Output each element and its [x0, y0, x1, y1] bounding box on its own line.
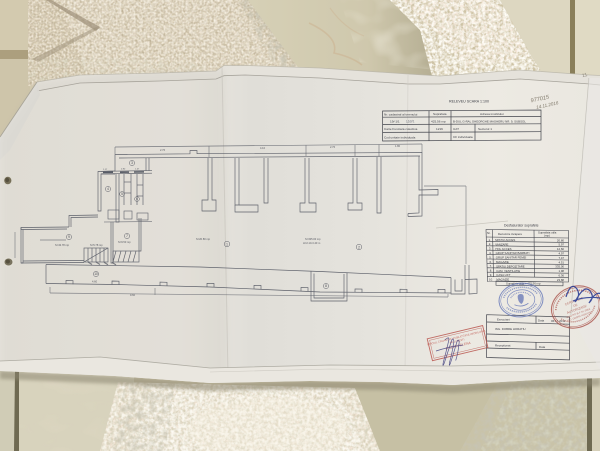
svg-text:Nr.: Nr.: [487, 231, 491, 235]
svg-text:Denumire incapere: Denumire incapere: [498, 232, 522, 236]
svg-text:2.76: 2.76: [160, 148, 166, 152]
svg-text:23,88: 23,88: [557, 278, 565, 282]
svg-text:1,98: 1,98: [558, 269, 564, 273]
svg-text:4: 4: [107, 187, 109, 191]
svg-text:1: 1: [226, 242, 228, 246]
svg-text:Receptionat: Receptionat: [495, 344, 511, 348]
svg-text:Data: Data: [538, 319, 544, 323]
svg-text:6: 6: [136, 197, 138, 201]
svg-text:4,97: 4,97: [558, 252, 564, 256]
svg-text:Adresa imobilului: Adresa imobilului: [480, 112, 504, 116]
svg-text:2.: 2.: [489, 242, 492, 246]
svg-text:1.: 1.: [489, 238, 492, 242]
svg-text:GRUP SANITAR FEMEI: GRUP SANITAR FEMEI: [496, 256, 527, 260]
svg-text:4.: 4.: [489, 251, 492, 255]
svg-text:7,47: 7,47: [558, 256, 564, 260]
svg-text:5,97: 5,97: [558, 243, 564, 247]
svg-text:1.80: 1.80: [395, 144, 401, 148]
svg-text:6.: 6.: [490, 260, 493, 264]
svg-text:7.: 7.: [490, 264, 493, 268]
svg-text:MAGAZIE: MAGAZIE: [496, 260, 509, 264]
svg-text:CAM. VENTILATIE: CAM. VENTILATIE: [496, 269, 520, 273]
svg-text:H=2.10-3.40 m: H=2.10-3.40 m: [303, 241, 320, 245]
svg-text:425,56 mp: 425,56 mp: [431, 119, 446, 123]
svg-text:CASA LIFT: CASA LIFT: [496, 273, 510, 277]
svg-text:2.76: 2.76: [330, 145, 336, 149]
svg-text:3.: 3.: [489, 247, 492, 251]
svg-text:5.: 5.: [489, 255, 492, 259]
svg-text:4.60: 4.60: [92, 280, 98, 284]
svg-text:6,36: 6,36: [558, 274, 564, 278]
svg-text:HOL ACCES: HOL ACCES: [495, 247, 511, 251]
svg-text:CF individuala: CF individuala: [453, 135, 473, 139]
svg-text:19/-1/1: 19/-1/1: [390, 120, 400, 124]
svg-text:150/1: 150/1: [406, 119, 415, 124]
svg-text:VANZARE: VANZARE: [495, 242, 508, 246]
svg-text:Sectorul 1: Sectorul 1: [478, 127, 492, 131]
svg-text:1216: 1216: [436, 127, 443, 131]
svg-text:Cod unitate individuala: Cod unitate individuala: [384, 135, 416, 139]
svg-text:3: 3: [131, 161, 133, 165]
svg-text:RELEVEU SCARA 1:100: RELEVEU SCARA 1:100: [449, 100, 489, 104]
svg-text:4.10: 4.10: [260, 146, 266, 150]
svg-text:S=5.78 mp: S=5.78 mp: [90, 243, 103, 247]
svg-text:335,00: 335,00: [555, 265, 564, 269]
svg-text:Desfasurator suprafete: Desfasurator suprafete: [504, 224, 539, 228]
svg-text:Nr. cadastral al terenului: Nr. cadastral al terenului: [384, 112, 418, 116]
svg-text:(mp): (mp): [544, 234, 550, 238]
svg-text:UAT: UAT: [453, 127, 459, 131]
svg-text:7: 7: [126, 234, 128, 238]
svg-text:10: 10: [94, 272, 98, 276]
svg-text:20,80: 20,80: [557, 238, 565, 242]
svg-text:Carte Funciara colectiva: Carte Funciara colectiva: [384, 127, 418, 131]
svg-text:8.: 8.: [490, 269, 493, 273]
svg-text:Executant: Executant: [497, 318, 510, 322]
svg-text:GRUP SANITAR BARBATI: GRUP SANITAR BARBATI: [496, 251, 530, 255]
svg-text:Suprafata: Suprafata: [433, 112, 447, 116]
svg-text:S=335.00 mp: S=335.00 mp: [305, 237, 321, 241]
svg-text:S=43.78 mp: S=43.78 mp: [55, 243, 70, 247]
svg-text:Data: Data: [539, 345, 545, 349]
svg-text:B-DUL G-RAL GHEORGHE MAGHERU N: B-DUL G-RAL GHEORGHE MAGHERU NR. 9, SUBS…: [453, 119, 526, 123]
svg-text:9.60: 9.60: [130, 293, 136, 297]
svg-text:12,60: 12,60: [557, 247, 565, 251]
svg-text:4,51: 4,51: [558, 260, 564, 264]
svg-text:SPATIU ACCES: SPATIU ACCES: [495, 238, 515, 242]
svg-text:S=20.80 mp: S=20.80 mp: [196, 237, 211, 241]
svg-text:S=9.53 mp: S=9.53 mp: [118, 240, 131, 244]
svg-text:9: 9: [68, 235, 70, 239]
svg-text:5: 5: [121, 192, 123, 196]
svg-text:2: 2: [358, 245, 360, 249]
svg-text:ING. DOBRE HORATIU: ING. DOBRE HORATIU: [495, 327, 526, 331]
svg-text:9.: 9.: [490, 273, 493, 277]
svg-text:10.: 10.: [489, 277, 493, 281]
svg-text:8: 8: [325, 284, 327, 288]
svg-text:SPATIU DEPOZITARE: SPATIU DEPOZITARE: [496, 264, 525, 268]
